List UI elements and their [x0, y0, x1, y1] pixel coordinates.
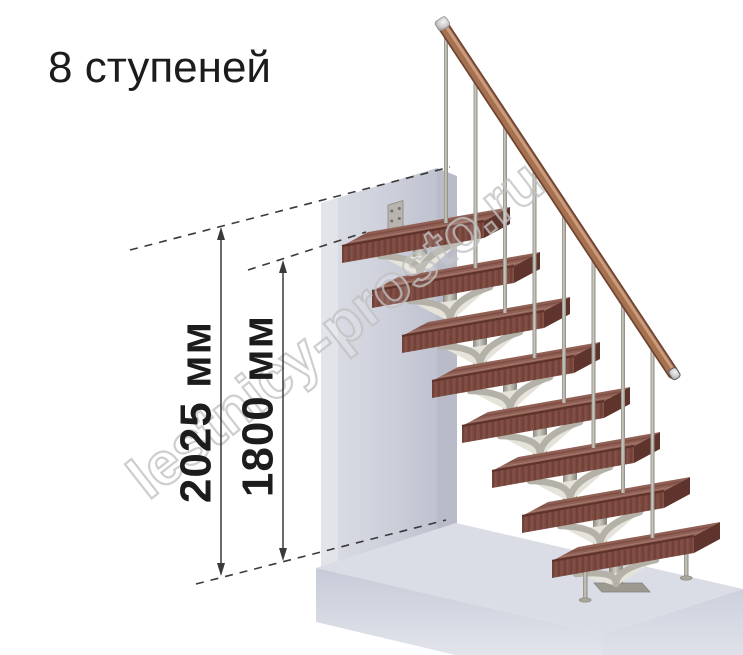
baluster-7: [621, 303, 625, 493]
arrow-up-icon: [279, 260, 287, 273]
staircase-dimension-diagram: lestnicy-prosto.ru 2025 мм 1800 мм 8 сту…: [0, 0, 743, 655]
arrow-down-icon: [217, 563, 225, 576]
dimension-floor-to-top-tread: 1800 мм: [234, 260, 288, 561]
page-title: 8 ступеней: [48, 43, 271, 92]
baluster-6: [592, 258, 596, 448]
baluster-1: [444, 30, 448, 223]
arrow-up-icon: [217, 227, 225, 240]
baluster-8: [651, 348, 655, 538]
dimension-label-total-height: 2025 мм: [172, 321, 221, 503]
wall-left-band: [321, 198, 338, 578]
diagram-canvas: lestnicy-prosto.ru 2025 мм 1800 мм 8 сту…: [0, 0, 743, 655]
arrow-down-icon: [279, 548, 287, 561]
baluster-5: [562, 214, 566, 403]
dimension-label-floor-to-top-tread: 1800 мм: [234, 315, 283, 497]
dimension-total-height: 2025 мм: [172, 227, 226, 576]
